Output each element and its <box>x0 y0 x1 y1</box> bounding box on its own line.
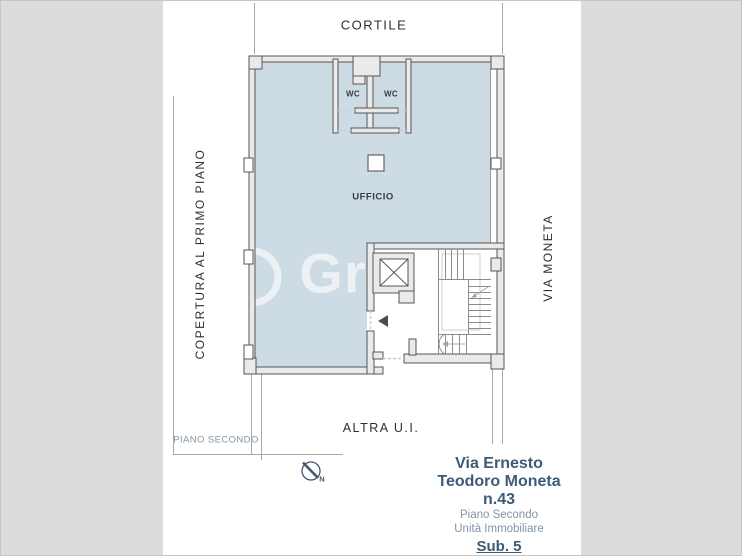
pilaster-left-3 <box>244 345 253 359</box>
address-line-3: n.43 <box>418 491 580 509</box>
window-strip <box>490 69 497 243</box>
wall-wc-bottombar <box>351 128 399 133</box>
wall-stair-right-block <box>491 258 501 271</box>
corner-bottom-right <box>491 354 504 369</box>
wall-wc-funnel <box>353 56 380 76</box>
stair-arrow-line <box>474 287 488 296</box>
label-via-moneta: VIA MONETA <box>541 214 555 301</box>
floor-label: Piano Secondo <box>418 509 580 523</box>
elevator <box>380 259 408 286</box>
wall-bottom-ufficio <box>249 367 383 374</box>
wall-right <box>497 56 504 363</box>
corner-top-left <box>249 56 262 69</box>
wall-wc-left <box>333 59 338 133</box>
address-line-1: Via Ernesto <box>418 455 580 473</box>
label-wc-left: WC <box>346 90 360 99</box>
wall-entry-stub <box>409 339 416 355</box>
unit-label: Unità Immobiliare <box>418 523 580 537</box>
wall-below-elevator <box>399 291 414 303</box>
corner-top-right <box>491 56 504 69</box>
label-cortile: CORTILE <box>341 18 408 33</box>
floorplan-page: Gr CORTILE COPERTURA AL PRIMO PIANO VIA … <box>0 0 742 556</box>
label-wc-right: WC <box>384 90 398 99</box>
label-copertura-al-primo-piano: COPERTURA AL PRIMO PIANO <box>193 149 207 360</box>
stair-arrow-head <box>471 293 477 298</box>
label-altra-ui: ALTRA U.I. <box>343 421 420 435</box>
wall-left <box>249 56 255 374</box>
pillar <box>368 155 384 171</box>
pilaster-left-2 <box>244 250 253 264</box>
north-compass <box>302 462 320 480</box>
wall-wc-midbar <box>355 108 398 113</box>
wall-wc-stem <box>367 76 373 133</box>
label-ufficio: UFFICIO <box>352 192 394 203</box>
subaltern-label: Sub. 5 <box>476 538 521 555</box>
pilaster-left-1 <box>244 158 253 172</box>
wall-stairwell-bottom <box>404 354 504 363</box>
wall-wc-funnel-step <box>353 76 365 84</box>
compass-north-label: N <box>319 475 324 484</box>
address-line-2: Teodoro Moneta <box>418 473 580 491</box>
title-block: Via Ernesto Teodoro Moneta n.43 Piano Se… <box>418 455 580 556</box>
watermark-text: Gr <box>299 241 366 306</box>
wall-room-foot <box>373 352 383 359</box>
stairs <box>438 249 491 354</box>
floorplan-drawing <box>1 1 742 556</box>
pilaster-right-1 <box>491 158 501 169</box>
entrance-door-arrow <box>378 315 388 327</box>
label-piano-secondo: PIANO SECONDO <box>173 435 258 446</box>
wall-stairwell-top <box>367 243 504 249</box>
wall-wc-right <box>406 59 411 133</box>
corner-bottom-left <box>244 358 256 374</box>
